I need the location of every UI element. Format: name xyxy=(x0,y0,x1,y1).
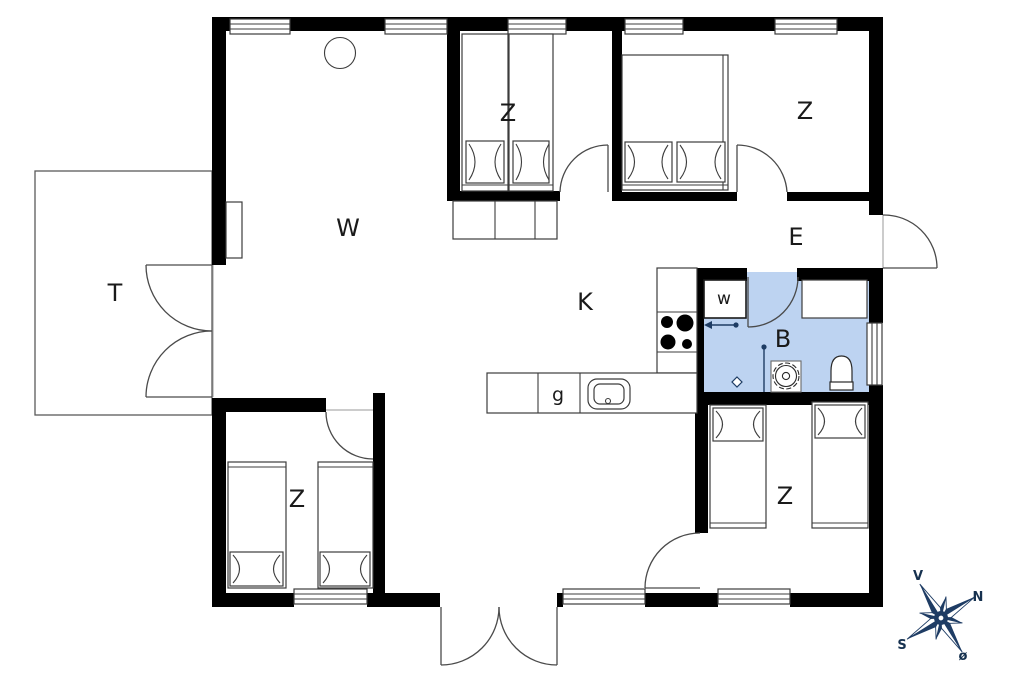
wall-bedroom2-south-left xyxy=(612,192,737,201)
fireplace-niche xyxy=(226,202,242,258)
wall-right-upper xyxy=(869,17,883,215)
compass-label-west: V xyxy=(913,569,923,584)
room-label-bedroom4: Z xyxy=(289,485,305,513)
wall-bedroom3-west xyxy=(695,405,708,533)
wall-bath-north-left xyxy=(695,268,747,281)
shower-bench xyxy=(802,280,867,318)
door-bedroom2 xyxy=(737,145,787,192)
room-label-bedroom1: Z xyxy=(500,99,516,127)
door-terrace-double xyxy=(146,265,213,397)
window-bottom-3 xyxy=(718,589,790,604)
compass-label-east: ø xyxy=(959,649,968,664)
wall-left-lower xyxy=(212,398,226,607)
wall-bedroom1-south xyxy=(447,191,560,201)
pillow xyxy=(625,142,672,182)
window-top-1 xyxy=(230,19,290,34)
compass-rose-icon: V N S ø xyxy=(886,563,996,673)
window-top-5 xyxy=(775,19,837,34)
room-label-bedroom2: Z xyxy=(797,97,813,125)
floor-plan-drawing: W T K E B Z Z Z Z w g V N S ø xyxy=(0,0,1024,682)
pillow xyxy=(466,141,504,183)
door-bedroom3 xyxy=(645,533,700,588)
wall-right-mid xyxy=(869,268,883,323)
wall-bedroom2-south-right xyxy=(787,192,869,201)
pillow xyxy=(320,552,370,586)
door-south-double xyxy=(441,607,557,665)
pillow xyxy=(230,552,283,586)
wall-bottom-1 xyxy=(212,593,294,607)
door-entrance xyxy=(883,215,937,268)
room-label-terrace: T xyxy=(107,279,123,307)
wall-left-upper xyxy=(212,17,226,265)
wall-bedroom4-east xyxy=(373,393,385,607)
room-label-kitchen: K xyxy=(577,288,594,316)
room-label-entrance: E xyxy=(788,223,803,251)
terrace-outline xyxy=(35,171,212,415)
room-label-bedroom3: Z xyxy=(777,482,793,510)
pillow xyxy=(713,408,763,441)
ceiling-lamp-icon xyxy=(325,38,356,69)
wardrobe xyxy=(453,201,557,239)
window-top-2 xyxy=(385,19,447,34)
room-label-bathroom: B xyxy=(775,325,791,353)
window-top-3 xyxy=(508,19,566,34)
window-top-4 xyxy=(625,19,683,34)
wall-right-lower xyxy=(869,385,883,607)
room-label-living: W xyxy=(336,214,360,242)
wall-bedroom4-north xyxy=(212,398,326,412)
room-label-utility: w xyxy=(717,289,731,309)
compass-label-south: S xyxy=(897,638,906,653)
bedroom2-furniture xyxy=(622,55,728,190)
pillow xyxy=(815,405,865,438)
bedroom1-furniture xyxy=(453,34,557,239)
shower-drain-unit xyxy=(771,361,801,392)
wall-bath-north-right xyxy=(797,268,869,281)
kitchen-sink xyxy=(588,379,630,409)
wall-bottom-3 xyxy=(557,593,563,607)
window-bottom-2 xyxy=(563,589,645,604)
wall-bedroom1-bedroom2 xyxy=(612,31,622,201)
floor-plan: W T K E B Z Z Z Z w g V N S ø xyxy=(0,0,1024,682)
toilet xyxy=(830,356,853,390)
door-bedroom1 xyxy=(560,145,608,192)
compass-label-north: N xyxy=(973,590,984,605)
bedroom4-furniture xyxy=(228,462,373,588)
window-right-bathroom xyxy=(867,323,882,385)
label-counter-cabinet: g xyxy=(552,384,564,406)
pillow xyxy=(677,142,725,182)
wall-bottom-5 xyxy=(790,593,883,607)
wall-living-bedroom1 xyxy=(447,31,460,191)
window-bottom-1 xyxy=(294,589,367,604)
wall-bottom-4 xyxy=(645,593,718,607)
door-bedroom4 xyxy=(326,410,373,459)
